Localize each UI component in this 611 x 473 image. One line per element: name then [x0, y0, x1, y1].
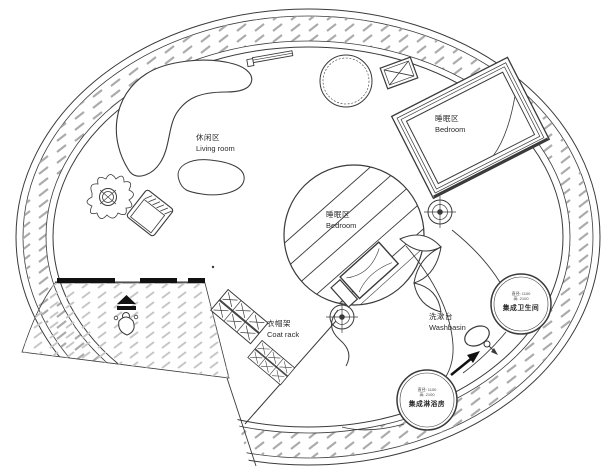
bathroom-pod: 直径: 1100 高: 2100 集成卫生间 [491, 274, 551, 334]
bedroom-center-label-zh: 睡眠区 [326, 210, 350, 219]
shower-pod-label: 集成淋浴房 [408, 399, 445, 408]
washbasin-label-en: Washbasin [429, 323, 466, 332]
bathroom-pod-spec-height: 高: 2100 [513, 295, 529, 301]
coat-rack-label-zh: 衣帽架 [267, 318, 291, 328]
round-table [320, 55, 372, 107]
bathroom-pod-label: 集成卫生间 [502, 303, 539, 312]
bedroom-upper-label-en: Bedroom [435, 125, 465, 134]
floor-plan-page: 直径: 1100 高: 2100 集成卫生间 直径: 1100 高: 2100 … [0, 0, 611, 473]
coat-rack-label-en: Coat rack [267, 330, 299, 339]
bedroom-upper-label-zh: 睡眠区 [435, 114, 459, 123]
washbasin-label-zh: 洗漱台 [429, 311, 453, 321]
shower-pod-spec-height: 高: 2100 [419, 391, 435, 397]
floor-plan-canvas: 直径: 1100 高: 2100 集成卫生间 直径: 1100 高: 2100 … [0, 0, 611, 473]
living-room-label-zh: 休闲区 [196, 132, 220, 142]
living-room-label-en: Living room [196, 144, 235, 153]
bedroom-center-label-en: Bedroom [326, 221, 356, 230]
shower-pod: 直径: 1100 高: 2100 集成淋浴房 [397, 370, 457, 430]
